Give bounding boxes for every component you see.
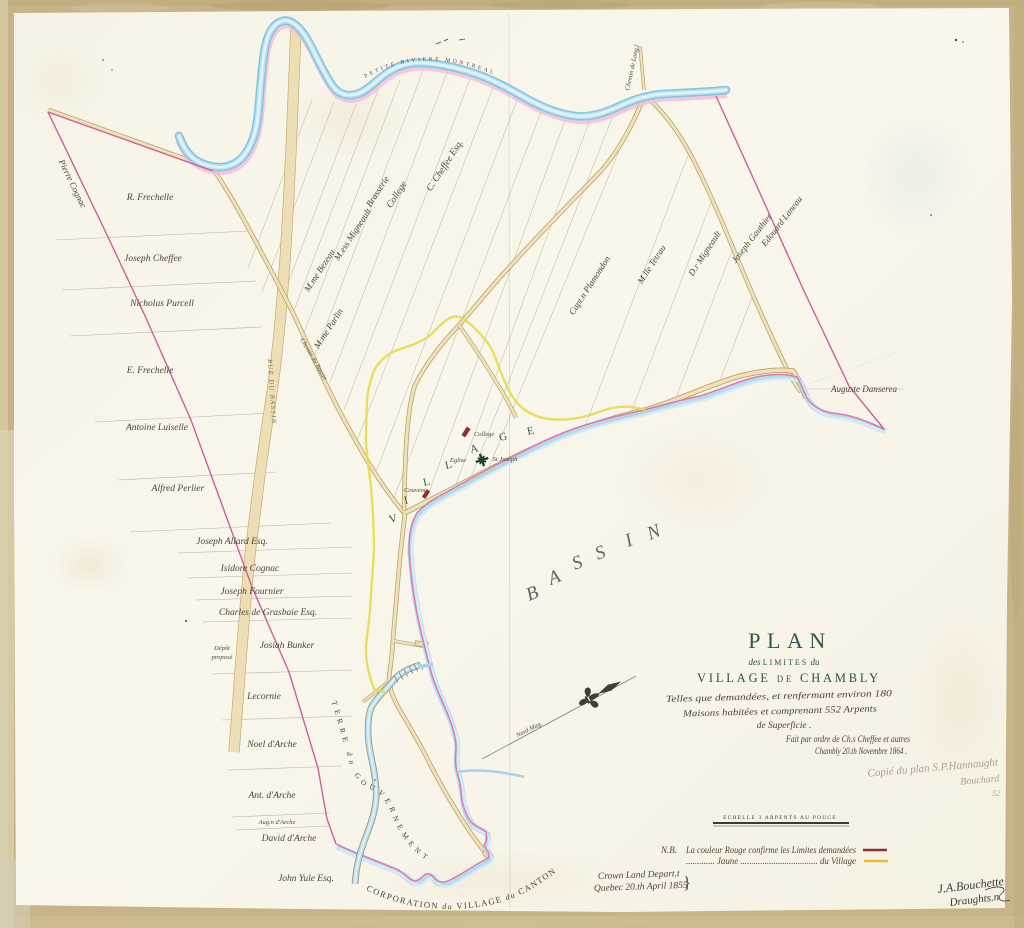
svg-text:Aug.n d'Arche: Aug.n d'Arche [258, 819, 296, 826]
svg-text:Couvent: Couvent [404, 487, 426, 494]
svg-text:Lecornie: Lecornie [246, 692, 281, 702]
svg-text:Isidore Cognac: Isidore Cognac [220, 564, 280, 574]
svg-text:52: 52 [992, 789, 1000, 798]
svg-text:College: College [474, 431, 494, 438]
svg-text:Alfred Perlier: Alfred Perlier [151, 483, 205, 494]
svg-text:Joseph Fournier: Joseph Fournier [220, 587, 283, 597]
svg-text:Charles de Grasbaie Esq.: Charles de Grasbaie Esq. [219, 608, 317, 618]
svg-text:R. Frechelle: R. Frechelle [126, 193, 174, 203]
svg-text:PLAN: PLAN [748, 628, 831, 653]
svg-text:Joseph Allard Esq.: Joseph Allard Esq. [196, 537, 268, 547]
svg-text:David d'Arche: David d'Arche [261, 834, 317, 844]
svg-text:Noel d'Arche: Noel d'Arche [246, 740, 296, 750]
svg-text:Chambly 20.th Novembre 1864 .: Chambly 20.th Novembre 1864 . [815, 746, 907, 756]
svg-text:Eglise: Eglise [449, 457, 466, 464]
svg-text:Ant. d'Arche: Ant. d'Arche [247, 791, 295, 801]
svg-text:St Joseph: St Joseph [493, 456, 518, 463]
svg-text:La couleur Rouge confirme les: La couleur Rouge confirme les Limites de… [685, 845, 856, 855]
svg-text:E. Frechelle: E. Frechelle [126, 366, 174, 376]
svg-text:}: } [683, 873, 691, 892]
svg-text:N.B.: N.B. [660, 845, 677, 855]
svg-text:Josiah Bunker: Josiah Bunker [260, 641, 315, 651]
svg-text:proposé: proposé [211, 654, 234, 661]
svg-text:de Superficie .: de Superficie . [757, 720, 812, 731]
svg-text:des LIMITES du: des LIMITES du [748, 657, 820, 667]
svg-text:Joseph Cheffee: Joseph Cheffee [124, 253, 182, 264]
svg-text:Fait par ordre de Ch.s Cheffee: Fait par ordre de Ch.s Cheffee et autres [785, 734, 910, 744]
svg-text:Nicholas Purcell: Nicholas Purcell [129, 299, 194, 309]
svg-text:Dépôt: Dépôt [213, 645, 230, 652]
svg-text:ECHELLE 3 ARPENTS AU POUCE: ECHELLE 3 ARPENTS AU POUCE [723, 815, 837, 821]
svg-text:Auguste Danserea: Auguste Danserea [830, 384, 897, 394]
svg-text:Antoine Luiselle: Antoine Luiselle [125, 423, 188, 433]
svg-text:............. Jaune ..........: ............. Jaune ....................… [686, 856, 856, 866]
svg-text:John Yule Esq.: John Yule Esq. [278, 874, 334, 884]
